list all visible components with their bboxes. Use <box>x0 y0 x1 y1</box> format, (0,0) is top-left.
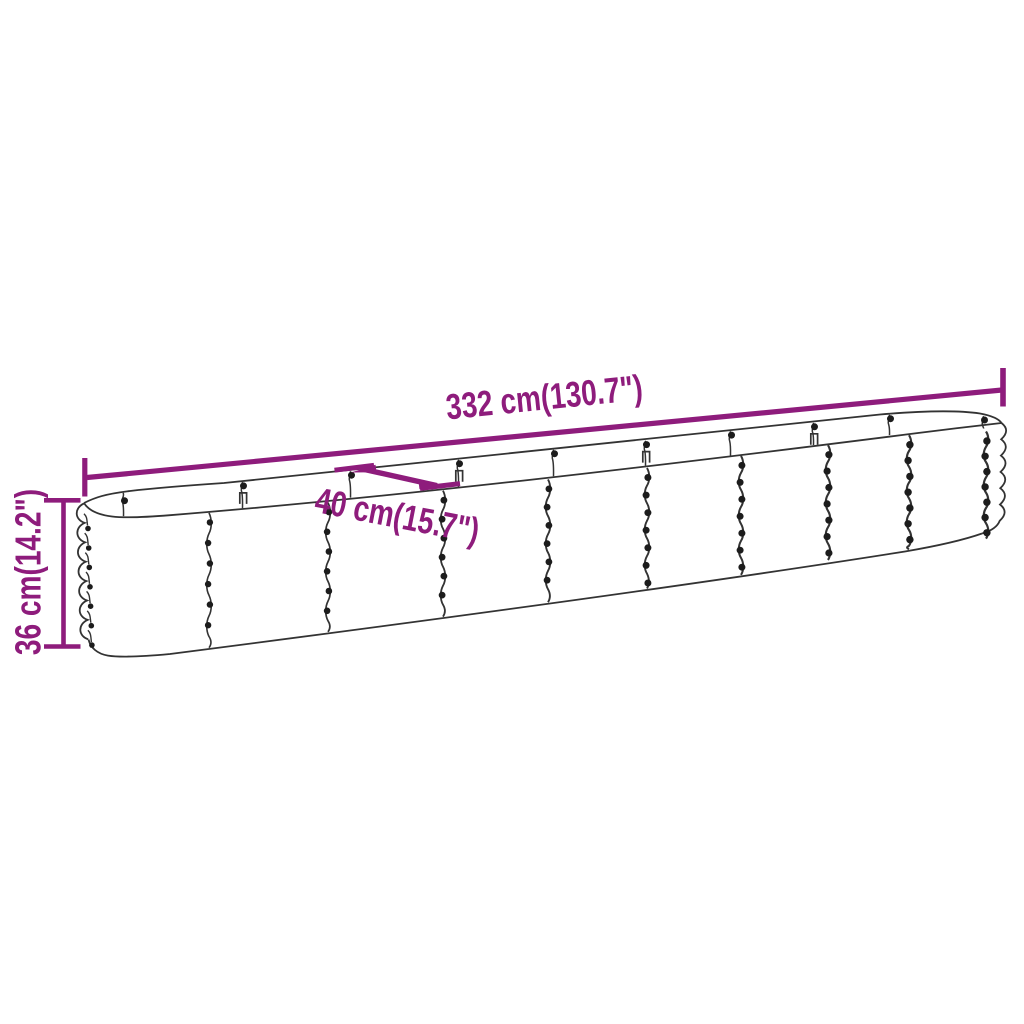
svg-text:36 cm(14.2"): 36 cm(14.2") <box>8 489 48 655</box>
